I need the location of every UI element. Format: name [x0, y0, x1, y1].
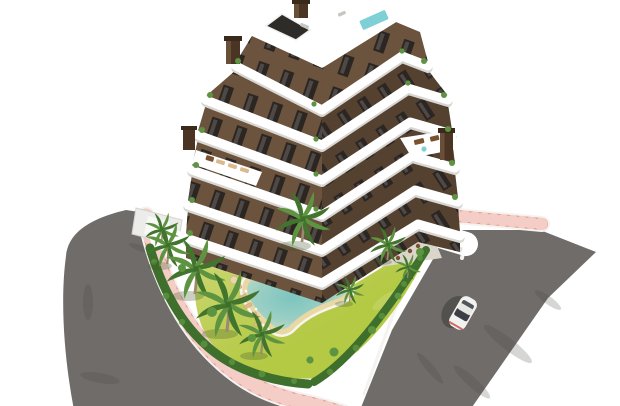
chimney-left-wing [181, 126, 197, 150]
chimney-right-terrace [438, 128, 455, 160]
render-canvas [0, 0, 620, 406]
scene-svg [0, 0, 620, 406]
chimney-roof-top [292, 0, 310, 18]
